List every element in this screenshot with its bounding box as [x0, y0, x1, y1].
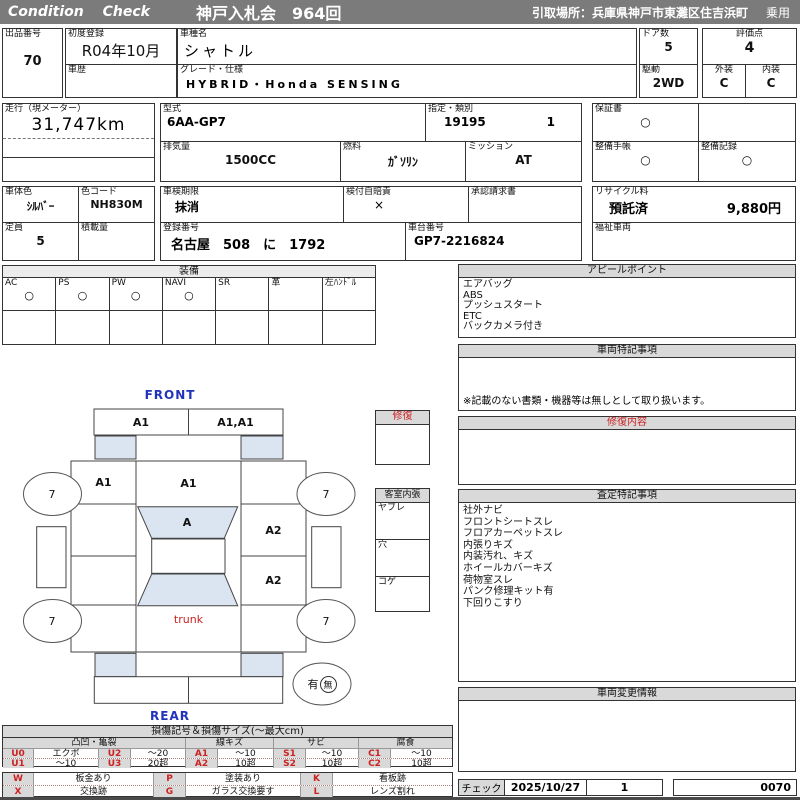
doors-label: ドア数 — [640, 29, 697, 40]
vehicle-usage: 乗用 — [766, 4, 790, 21]
doors-value: 5 — [640, 40, 697, 54]
recycle-status-value: 預託済 — [609, 198, 648, 217]
spare-has-label: 有 — [308, 676, 319, 692]
assessment-item: 下回りこすり — [463, 598, 791, 610]
legend-val-x: 交換跡 — [34, 786, 154, 797]
displacement-value: 1500CC — [161, 153, 340, 167]
headlight-right — [241, 436, 283, 459]
spare-none-label-circled: 無 — [320, 676, 337, 693]
score-value: 4 — [703, 40, 796, 56]
hood-code: A1 — [136, 461, 241, 506]
assessment-item: 内張りキズ — [463, 540, 791, 552]
drive-label: 駆動 — [640, 65, 697, 76]
auction-title: 神戸入札会 964回 — [196, 0, 341, 24]
legend-val-w: 板金あり — [34, 773, 154, 785]
assessment-item: 内装汚れ、キズ — [463, 551, 791, 563]
assessment-item: 荷物室スレ — [463, 575, 791, 587]
legend-val-u0: エクボ — [34, 749, 99, 758]
equip-ac-mark: ○ — [3, 289, 55, 302]
capacity-label: 定員 — [3, 223, 78, 234]
maintenance-book-mark: ○ — [593, 153, 698, 167]
vehicle-notes-disclaimer: ※記載のない書類・機器等は無しとして取り扱います。 — [463, 392, 710, 407]
lot-number-label: 出品番号 — [3, 29, 62, 40]
doors-drive-box: ドア数 5 駆動 2WD — [639, 28, 698, 98]
class-label: 指定・類別 — [426, 104, 581, 115]
wheel-rear-left-size: 7 — [38, 614, 66, 628]
class-number-value: 19195 — [444, 115, 486, 129]
legend-group-dents: 凸凹・亀裂 — [3, 738, 186, 748]
engine-box: 型式 6AA-GP7 指定・類別 19195 1 排気量 1500CC 燃料 ｶ… — [160, 103, 582, 182]
pickup-location: 引取場所：兵庫県神戸市東灘区住吉浜町 — [532, 4, 748, 21]
legend-code-a1: A1 — [186, 749, 218, 758]
lot-number-value: 70 — [3, 54, 62, 69]
appeal-points-title: アピールポイント — [459, 265, 795, 278]
front-label: FRONT — [130, 388, 210, 401]
rear-label: REAR — [130, 709, 210, 722]
repair-code-table: W 板金あり P 塗装あり K 看板跡 X 交換跡 G ガラス交換要す L レン… — [2, 772, 453, 797]
windshield-code: A — [137, 506, 237, 538]
drive-value: 2WD — [640, 76, 697, 90]
headlight-left — [95, 436, 136, 459]
maintenance-record-mark: ○ — [699, 153, 795, 167]
vin-value: GP7-2216824 — [406, 234, 581, 248]
rear-glass — [138, 574, 238, 606]
model-code-value: 6AA-GP7 — [161, 115, 425, 129]
maintenance-book-label: 整備手帳 — [593, 142, 698, 153]
equip-navi-label: NAVI — [163, 278, 215, 289]
assessment-notes-section: 査定特記事項 社外ナビ フロントシートスレ フロアカーペットスレ 内張りキズ 内… — [458, 489, 796, 682]
maintenance-record-label: 整備記録 — [699, 142, 795, 153]
taillight-left — [95, 653, 136, 676]
model-value: シャトル — [178, 40, 636, 61]
legend-code-x: X — [3, 786, 34, 797]
legend-code-c2: C2 — [359, 759, 391, 768]
first-registration-box: 初度登録 R04年10月 車歴 — [65, 28, 177, 98]
displacement-label: 排気量 — [161, 142, 340, 153]
vehicle-notes-section: 車両特記事項 ※記載のない書類・機器等は無しとして取り扱います。 — [458, 344, 796, 411]
assessment-item: フロアカーペットスレ — [463, 528, 791, 540]
auction-sheet: Condition Check 神戸入札会 964回 引取場所：兵庫県神戸市東灘… — [0, 0, 800, 800]
legend-val-u2: ～20 — [131, 749, 186, 758]
legend-val-a2: 10超 — [218, 759, 274, 768]
insurance-mark: × — [344, 198, 468, 212]
warranty-mark: ○ — [593, 115, 698, 129]
right-side-panel — [312, 527, 341, 588]
equip-ps-label: PS — [56, 278, 108, 289]
equip-pw-label: PW — [110, 278, 162, 289]
body-color-value: ｼﾙﾊﾞｰ — [3, 198, 78, 214]
appeal-item: バックカメラ付き — [463, 322, 791, 333]
transmission-label: ミッション — [466, 142, 581, 153]
class-sub-value: 1 — [547, 115, 555, 129]
equip-leather-label: 革 — [269, 278, 321, 289]
assessment-item: ホイールカバーキズ — [463, 563, 791, 575]
legend-val-s2: 10超 — [306, 759, 359, 768]
right-rear-door-code: A2 — [241, 556, 306, 605]
equipment-title: 装備 — [3, 266, 375, 278]
inspection-label: 車検期限 — [161, 187, 343, 198]
legend-group-corrosion: 腐食 — [359, 738, 452, 748]
transmission-value: AT — [466, 153, 581, 167]
legend-val-p: 塗装あり — [186, 773, 301, 785]
appeal-item: エアバッグ — [463, 280, 791, 291]
damage-diagram: FRONT REAR A1 A1,A1 A1 A1 A A2 A2 trunk … — [0, 385, 460, 725]
recycle-label: リサイクル料 — [593, 187, 795, 198]
fuel-value: ｶﾞｿﾘﾝ — [341, 153, 465, 170]
assessment-notes-title: 査定特記事項 — [459, 490, 795, 503]
color-code-label: 色コード — [79, 187, 154, 198]
legend-code-a2: A2 — [186, 759, 218, 768]
first-registration-label: 初度登録 — [66, 29, 176, 40]
equip-ac-label: AC — [3, 278, 55, 289]
front-bumper-right-code: A1,A1 — [188, 409, 283, 435]
assessment-item: フロントシートスレ — [463, 517, 791, 529]
legend-code-s2: S2 — [274, 759, 306, 768]
grade-value: HYBRID・Honda SENSING — [178, 76, 636, 92]
legend-val-u1: ～10 — [34, 759, 99, 768]
vehicle-notes-title: 車両特記事項 — [459, 345, 795, 358]
legend-val-c2: 10超 — [391, 759, 452, 768]
equip-pw-mark: ○ — [110, 289, 162, 302]
legend-code-g: G — [154, 786, 186, 797]
legend-val-k: 看板跡 — [333, 773, 452, 785]
model-label: 車種名 — [178, 29, 636, 40]
score-box: 評価点 4 外装 C 内装 C — [702, 28, 797, 98]
inspection-value: 抹消 — [161, 198, 343, 215]
page-number-box: 0070 — [673, 779, 797, 796]
front-bumper-left-code: A1 — [94, 409, 188, 435]
model-box: 車種名 シャトル グレード・仕様 HYBRID・Honda SENSING — [177, 28, 637, 98]
change-info-section: 車両変更情報 — [458, 687, 796, 772]
trunk-label: trunk — [136, 607, 241, 631]
legend-code-p: P — [154, 773, 186, 785]
approval-request-label: 承認請求書 — [469, 187, 581, 198]
recycle-box: リサイクル料 預託済 9,880円 福祉車両 — [592, 186, 796, 261]
check-count: 1 — [587, 780, 662, 795]
brand-logo: Condition Check — [8, 4, 150, 20]
roof-panel — [152, 539, 225, 573]
equip-sr-label: SR — [216, 278, 268, 289]
legend-code-l: L — [301, 786, 333, 797]
model-code-label: 型式 — [161, 104, 425, 115]
history-label: 車歴 — [66, 65, 176, 76]
mileage-label: 走行（現メーター） — [3, 104, 154, 115]
header-bar: Condition Check 神戸入札会 964回 引取場所：兵庫県神戸市東灘… — [0, 0, 800, 24]
taillight-right — [241, 653, 283, 676]
grade-label: グレード・仕様 — [178, 65, 636, 76]
legend-val-s1: ～10 — [306, 749, 359, 758]
legend-val-a1: ～10 — [218, 749, 274, 758]
score-label: 評価点 — [703, 29, 796, 40]
damage-legend-table: 損傷記号＆損傷サイズ(～最大cm) 凸凹・亀裂 線キズ サビ 腐食 U0 エクボ… — [2, 725, 453, 767]
legend-code-s1: S1 — [274, 749, 306, 758]
first-registration-value: R04年10月 — [66, 40, 176, 61]
equip-lhd-label: 左ﾊﾝﾄﾞﾙ — [323, 278, 375, 289]
documents-box: 保証書 ○ 整備手帳 ○ 整備記録 ○ — [592, 103, 796, 182]
appeal-item: プッシュスタート — [463, 301, 791, 312]
left-fender-code: A1 — [71, 461, 136, 504]
check-date: 2025/10/27 — [505, 780, 587, 795]
mileage-empty-row-1 — [3, 139, 154, 158]
fuel-label: 燃料 — [341, 142, 465, 153]
interior-grade-label: 内装 — [746, 65, 796, 76]
repair-detail-title: 修復内容 — [459, 417, 795, 430]
mileage-value: 31,747km — [3, 115, 154, 135]
legend-val-l: レンズ割れ — [333, 786, 452, 797]
load-label: 積載量 — [79, 223, 154, 234]
legend-code-c1: C1 — [359, 749, 391, 758]
damage-legend-title: 損傷記号＆損傷サイズ(～最大cm) — [3, 726, 452, 738]
lot-number-box: 出品番号 70 — [2, 28, 63, 98]
recycle-fee-value: 9,880円 — [727, 198, 781, 217]
wheel-rear-right-size: 7 — [312, 614, 340, 628]
equip-navi-mark: ○ — [163, 289, 215, 302]
interior-grade-value: C — [746, 76, 796, 90]
check-row: チェック 2025/10/27 1 — [458, 779, 663, 796]
left-side-panel — [37, 527, 66, 588]
wheel-front-right-size: 7 — [312, 487, 340, 501]
insurance-label: 検付自賠責 — [344, 187, 468, 198]
legend-val-u3: 20超 — [131, 759, 186, 768]
vin-label: 車台番号 — [406, 223, 581, 234]
legend-code-u2: U2 — [99, 749, 131, 758]
damage-diagram-svg — [0, 385, 460, 725]
repair-detail-section: 修復内容 — [458, 416, 796, 485]
legend-code-u1: U1 — [3, 759, 34, 768]
registration-box: 車検期限 抹消 検付自賠責 × 承認請求書 登録番号 名古屋 508 に 179… — [160, 186, 582, 261]
plate-value: 名古屋 508 に 1792 — [161, 234, 405, 253]
check-label: チェック — [459, 780, 505, 795]
right-front-door-code: A2 — [241, 504, 306, 556]
legend-val-c1: ～10 — [391, 749, 452, 758]
wheel-front-left-size: 7 — [38, 487, 66, 501]
legend-code-k: K — [301, 773, 333, 785]
exterior-grade-label: 外装 — [703, 65, 745, 76]
legend-code-u3: U3 — [99, 759, 131, 768]
color-capacity-box: 車体色 ｼﾙﾊﾞｰ 色コード NH830M 定員 5 積載量 — [2, 186, 155, 261]
welfare-label: 福祉車両 — [593, 223, 795, 234]
plate-label: 登録番号 — [161, 223, 405, 234]
legend-group-rust: サビ — [274, 738, 359, 748]
legend-code-w: W — [3, 773, 34, 785]
legend-val-g: ガラス交換要す — [186, 786, 301, 797]
appeal-points-section: アピールポイント エアバッグ ABS プッシュスタート ETC バックカメラ付き — [458, 264, 796, 338]
legend-code-u0: U0 — [3, 749, 34, 758]
color-code-value: NH830M — [79, 198, 154, 211]
exterior-grade-value: C — [703, 76, 745, 90]
spare-tire-mark: 有 無 — [294, 673, 350, 695]
assessment-item: パンク修理キット有 — [463, 586, 791, 598]
capacity-value: 5 — [3, 234, 78, 248]
legend-group-scratch: 線キズ — [186, 738, 274, 748]
equip-ps-mark: ○ — [56, 289, 108, 302]
body-color-label: 車体色 — [3, 187, 78, 198]
equipment-table: 装備 AC○ PS○ PW○ NAVI○ SR 革 左ﾊﾝﾄﾞﾙ — [2, 265, 376, 345]
documents-empty-cell — [699, 104, 795, 141]
mileage-box: 走行（現メーター） 31,747km — [2, 103, 155, 182]
warranty-label: 保証書 — [593, 104, 698, 115]
change-info-title: 車両変更情報 — [459, 688, 795, 701]
assessment-item: 社外ナビ — [463, 505, 791, 517]
